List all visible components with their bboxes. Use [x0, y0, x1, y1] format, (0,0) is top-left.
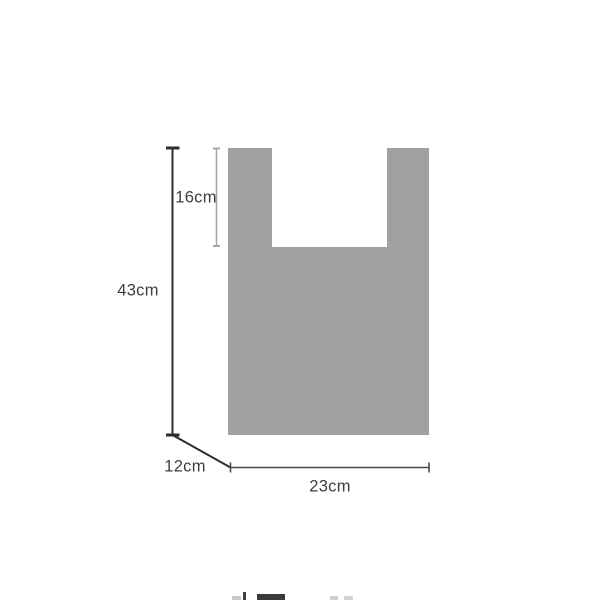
diagram-drawing	[0, 0, 600, 600]
cutoff-text-fragment	[330, 596, 338, 600]
bottom-width-label: 23cm	[309, 478, 351, 497]
gusset-depth-label: 12cm	[164, 458, 206, 477]
cutoff-text-fragment	[232, 596, 241, 600]
dimension-line-bottom-width	[231, 463, 430, 473]
cutoff-text-fragment	[257, 594, 285, 600]
bag-silhouette	[228, 147, 429, 435]
cutoff-text-fragment	[243, 592, 246, 600]
dimension-diagram: 16cm 43cm 12cm 23cm	[0, 0, 600, 600]
bag-handle-cutout	[272, 147, 387, 247]
cutoff-text-fragment	[344, 596, 353, 600]
handle-depth-label: 16cm	[175, 189, 217, 208]
total-height-label: 43cm	[117, 282, 159, 301]
